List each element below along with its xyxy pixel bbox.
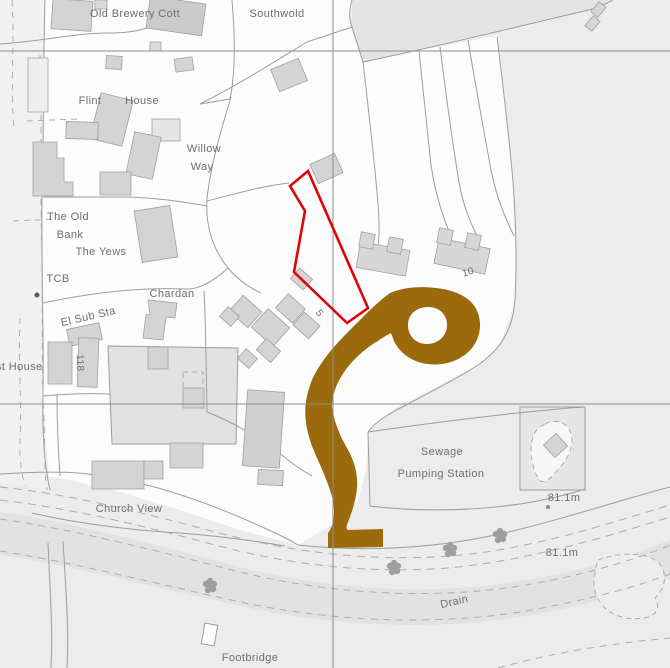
label-the-yews: The Yews — [76, 246, 127, 258]
label-bank: Bank — [57, 229, 84, 241]
building — [66, 121, 99, 139]
building — [28, 58, 48, 112]
building — [387, 237, 403, 254]
building — [148, 347, 168, 369]
label-way: Way — [191, 161, 214, 173]
building — [258, 469, 284, 485]
backland-parcel — [108, 346, 238, 444]
tree-icon — [450, 550, 456, 556]
building — [174, 57, 194, 72]
building — [92, 461, 144, 489]
label-height-2: 81.1m — [546, 547, 579, 559]
tree-icon — [210, 586, 216, 592]
building — [465, 233, 482, 251]
label-southwold: Southwold — [250, 8, 305, 20]
label-willow: Willow — [187, 143, 221, 155]
label-house: House — [125, 95, 159, 107]
building — [48, 342, 72, 384]
benchmark-dot — [546, 505, 550, 509]
label-height-1: 81.1m — [548, 492, 581, 504]
label-chardan: Chardan — [150, 288, 195, 300]
label-pumping-station: Pumping Station — [398, 468, 485, 480]
building — [183, 388, 204, 408]
label-flint: Flint — [79, 95, 102, 107]
building — [144, 461, 163, 479]
label-church-view: Church View — [96, 503, 163, 515]
building — [51, 0, 93, 31]
boundary-marker-dot — [35, 293, 40, 298]
building — [150, 42, 161, 51]
tree-icon — [391, 560, 397, 566]
tree-icon — [207, 578, 213, 584]
label-tcb: TCB — [46, 273, 69, 285]
building — [134, 206, 178, 263]
building — [359, 232, 375, 249]
label-sewage: Sewage — [421, 446, 463, 458]
label-the-old: The Old — [47, 211, 89, 223]
map-canvas: WAYOld Brewery CottSouthwoldFlintHouseWi… — [0, 0, 670, 668]
map-viewport[interactable]: WAYOld Brewery CottSouthwoldFlintHouseWi… — [0, 0, 670, 668]
building — [242, 390, 284, 468]
building — [437, 228, 454, 246]
tree-icon — [500, 536, 506, 542]
building — [106, 56, 123, 70]
label-118: 118 — [74, 354, 86, 372]
label-st-house: st House — [0, 361, 43, 373]
tree-icon — [497, 528, 503, 534]
tree-icon — [447, 542, 453, 548]
tree-icon — [394, 568, 400, 574]
label-footbridge: Footbridge — [222, 652, 279, 664]
label-old-brewery-cott: Old Brewery Cott — [90, 8, 180, 20]
building — [170, 443, 203, 468]
building — [100, 172, 131, 195]
